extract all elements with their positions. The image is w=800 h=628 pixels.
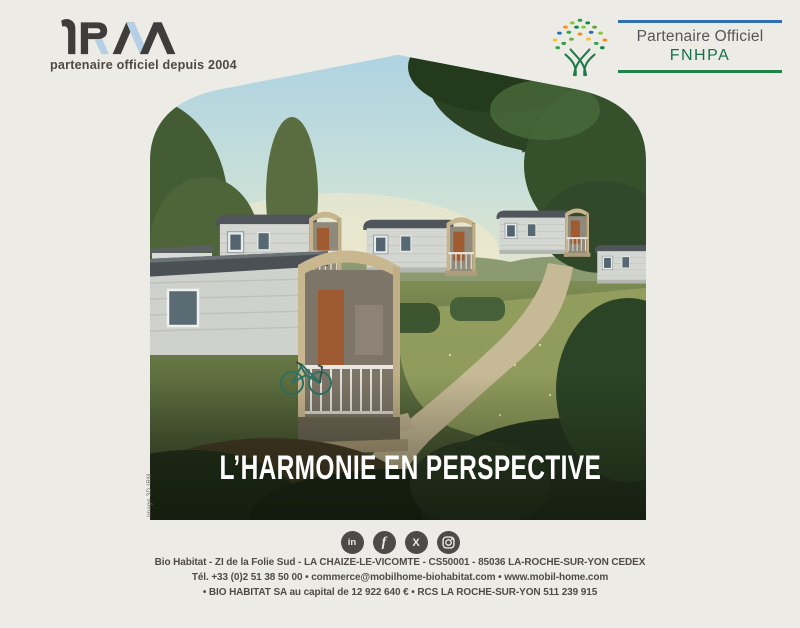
x-icon[interactable]: X	[405, 531, 428, 554]
badge-partner-label: Partenaire Officiel	[618, 28, 782, 46]
facebook-icon[interactable]: f	[373, 531, 396, 554]
hero-image: L’HARMONIE EN PERSPECTIVE	[150, 55, 646, 520]
hero-headline: L’HARMONIE EN PERSPECTIVE	[219, 449, 576, 488]
badge-rule-top	[618, 20, 782, 23]
linkedin-icon[interactable]: in	[341, 531, 364, 554]
mobile-home	[595, 243, 646, 286]
image-credit: Image 3D IRM	[147, 474, 153, 517]
hedge	[450, 297, 505, 321]
footer-legal: • BIO HABITAT SA au capital de 12 922 64…	[0, 585, 800, 600]
irm-logo-icon	[60, 16, 178, 56]
footer-address: Bio Habitat - ZI de la Folie Sud - LA CH…	[0, 555, 800, 570]
footer: Bio Habitat - ZI de la Folie Sud - LA CH…	[0, 555, 800, 600]
footer-contact: Tél. +33 (0)2 51 38 50 00 • commerce@mob…	[0, 570, 800, 585]
tree-leaves	[553, 19, 608, 50]
instagram-icon[interactable]	[437, 531, 460, 554]
social-links: in f X	[0, 531, 800, 554]
irm-logo: iRM	[60, 16, 178, 56]
